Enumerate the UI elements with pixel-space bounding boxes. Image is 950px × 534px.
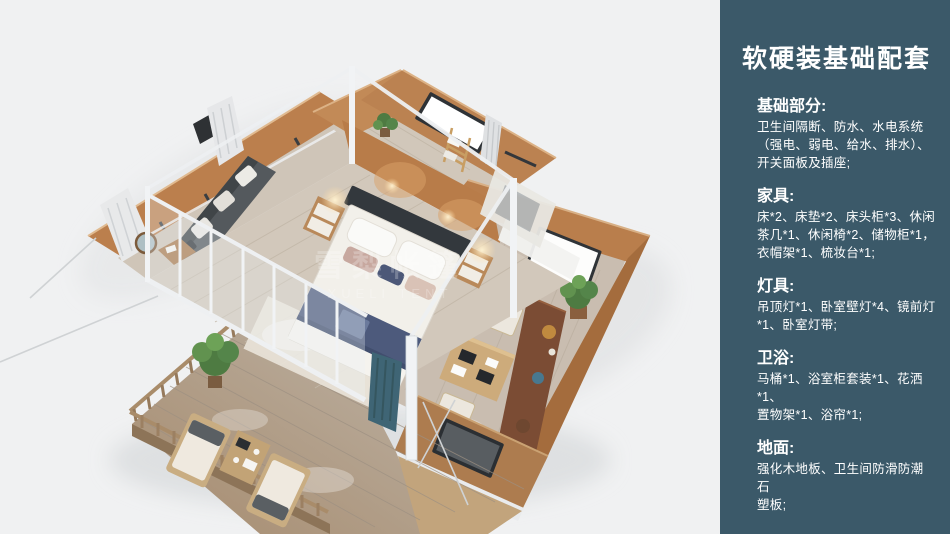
frame-post-north: [349, 66, 355, 164]
floorplan-svg: 雪梨帐篷 XUELI TENT: [0, 0, 720, 534]
section-line: 衣帽架*1、梳妆台*1;: [757, 244, 936, 262]
frame-post-east: [510, 178, 517, 318]
section-line: 开关面板及插座;: [757, 154, 936, 172]
section-line: 床*2、床垫*2、床头柜*3、休闲: [757, 208, 936, 226]
spec-section-flooring: 地面: 强化木地板、卫生间防滑防潮石 塑板;: [757, 440, 936, 514]
frame-post-west: [145, 186, 150, 282]
section-line: 强化木地板、卫生间防滑防潮石: [757, 460, 936, 496]
watermark: 雪梨帐篷 XUELI TENT: [314, 250, 466, 301]
section-heading: 基础部分:: [757, 98, 936, 116]
section-line: （强电、弱电、给水、排水）、: [757, 136, 936, 154]
wall-lamp-1: [384, 178, 400, 194]
spec-section-sanitary: 卫浴: 马桶*1、浴室柜套装*1、花洒*1、 置物架*1、浴帘*1;: [757, 350, 936, 424]
section-line: 马桶*1、浴室柜套装*1、花洒*1、: [757, 370, 936, 406]
spec-sections: 基础部分: 卫生间隔断、防水、水电系统 （强电、弱电、给水、排水）、 开关面板及…: [757, 98, 936, 514]
floorplan-render: 雪梨帐篷 XUELI TENT: [0, 0, 720, 534]
wall-lamp-2: [440, 209, 456, 225]
section-line: *1、卧室灯带;: [757, 316, 936, 334]
spec-panel: 软硬装基础配套 基础部分: 卫生间隔断、防水、水电系统 （强电、弱电、给水、排水…: [720, 0, 950, 534]
section-heading: 卫浴:: [757, 350, 936, 368]
panel-title: 软硬装基础配套: [742, 44, 936, 74]
spec-section-lighting: 灯具: 吊顶灯*1、卧室壁灯*4、镜前灯 *1、卧室灯带;: [757, 278, 936, 334]
section-line: 茶几*1、休闲椅*2、储物柜*1，: [757, 226, 936, 244]
watermark-en: XUELI TENT: [328, 286, 453, 301]
section-line: 卫生间隔断、防水、水电系统: [757, 118, 936, 136]
spec-section-basics: 基础部分: 卫生间隔断、防水、水电系统 （强电、弱电、给水、排水）、 开关面板及…: [757, 98, 936, 172]
page: 雪梨帐篷 XUELI TENT 软硬装基础配套 基础部分: 卫生间隔断、防水、水…: [0, 0, 950, 534]
section-line: 吊顶灯*1、卧室壁灯*4、镜前灯: [757, 298, 936, 316]
teal-curtain: [368, 352, 402, 432]
watermark-cn: 雪梨帐篷: [314, 250, 466, 283]
frame-post-south: [406, 336, 417, 460]
lamp-left: [321, 186, 349, 214]
section-line: 塑板;: [757, 496, 936, 514]
section-heading: 灯具:: [757, 278, 936, 296]
spec-section-furniture: 家具: 床*2、床垫*2、床头柜*3、休闲 茶几*1、休闲椅*2、储物柜*1， …: [757, 188, 936, 262]
section-heading: 家具:: [757, 188, 936, 206]
section-line: 置物架*1、浴帘*1;: [757, 406, 936, 424]
section-heading: 地面:: [757, 440, 936, 458]
